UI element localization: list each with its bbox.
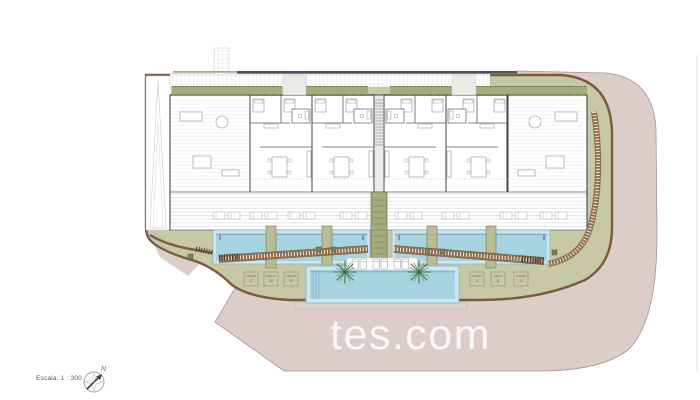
parking-stall-number: 09 xyxy=(289,279,293,283)
palm-tree-icon xyxy=(408,261,430,283)
parking-stall-number: 08 xyxy=(269,279,273,283)
parking-stall-label: CHALET xyxy=(516,274,527,278)
communal-pool xyxy=(295,258,467,309)
parking-stall-label: CHALET xyxy=(472,274,483,278)
top-boundary-wall xyxy=(237,71,517,74)
end-unit-right xyxy=(507,95,586,192)
palm-tree-icon xyxy=(334,261,356,283)
north-compass-icon: N xyxy=(84,366,107,392)
parking-stall-number: 07 xyxy=(249,279,253,283)
top-retaining-line xyxy=(173,71,239,72)
central-stair-core xyxy=(374,95,384,192)
communal-pool-deck xyxy=(347,258,417,270)
parking-stall-number: 10 xyxy=(475,279,479,283)
north-label: N xyxy=(101,366,107,373)
parking-stall-label: CHALET xyxy=(266,274,277,278)
parking-stall-label: CHALET xyxy=(286,274,297,278)
parking-stall-number: 12 xyxy=(519,279,523,283)
site-plan-drawing: CHALET 07 CHALET 08 CHALET 09 CHALET 10 … xyxy=(0,0,700,400)
parking-stall-label: CHALET xyxy=(246,274,257,278)
pergola-walkway xyxy=(170,48,490,87)
scale-label: Escala: 1 : 300 xyxy=(36,375,82,382)
parking-stall-number: 11 xyxy=(496,279,500,283)
watermark: tes.com xyxy=(330,311,491,359)
end-unit-left xyxy=(171,95,250,192)
site-plan-canvas: CHALET 07 CHALET 08 CHALET 09 CHALET 10 … xyxy=(0,0,700,400)
left-ramp-strip xyxy=(146,76,171,230)
parking-stall-label: CHALET xyxy=(493,274,504,278)
